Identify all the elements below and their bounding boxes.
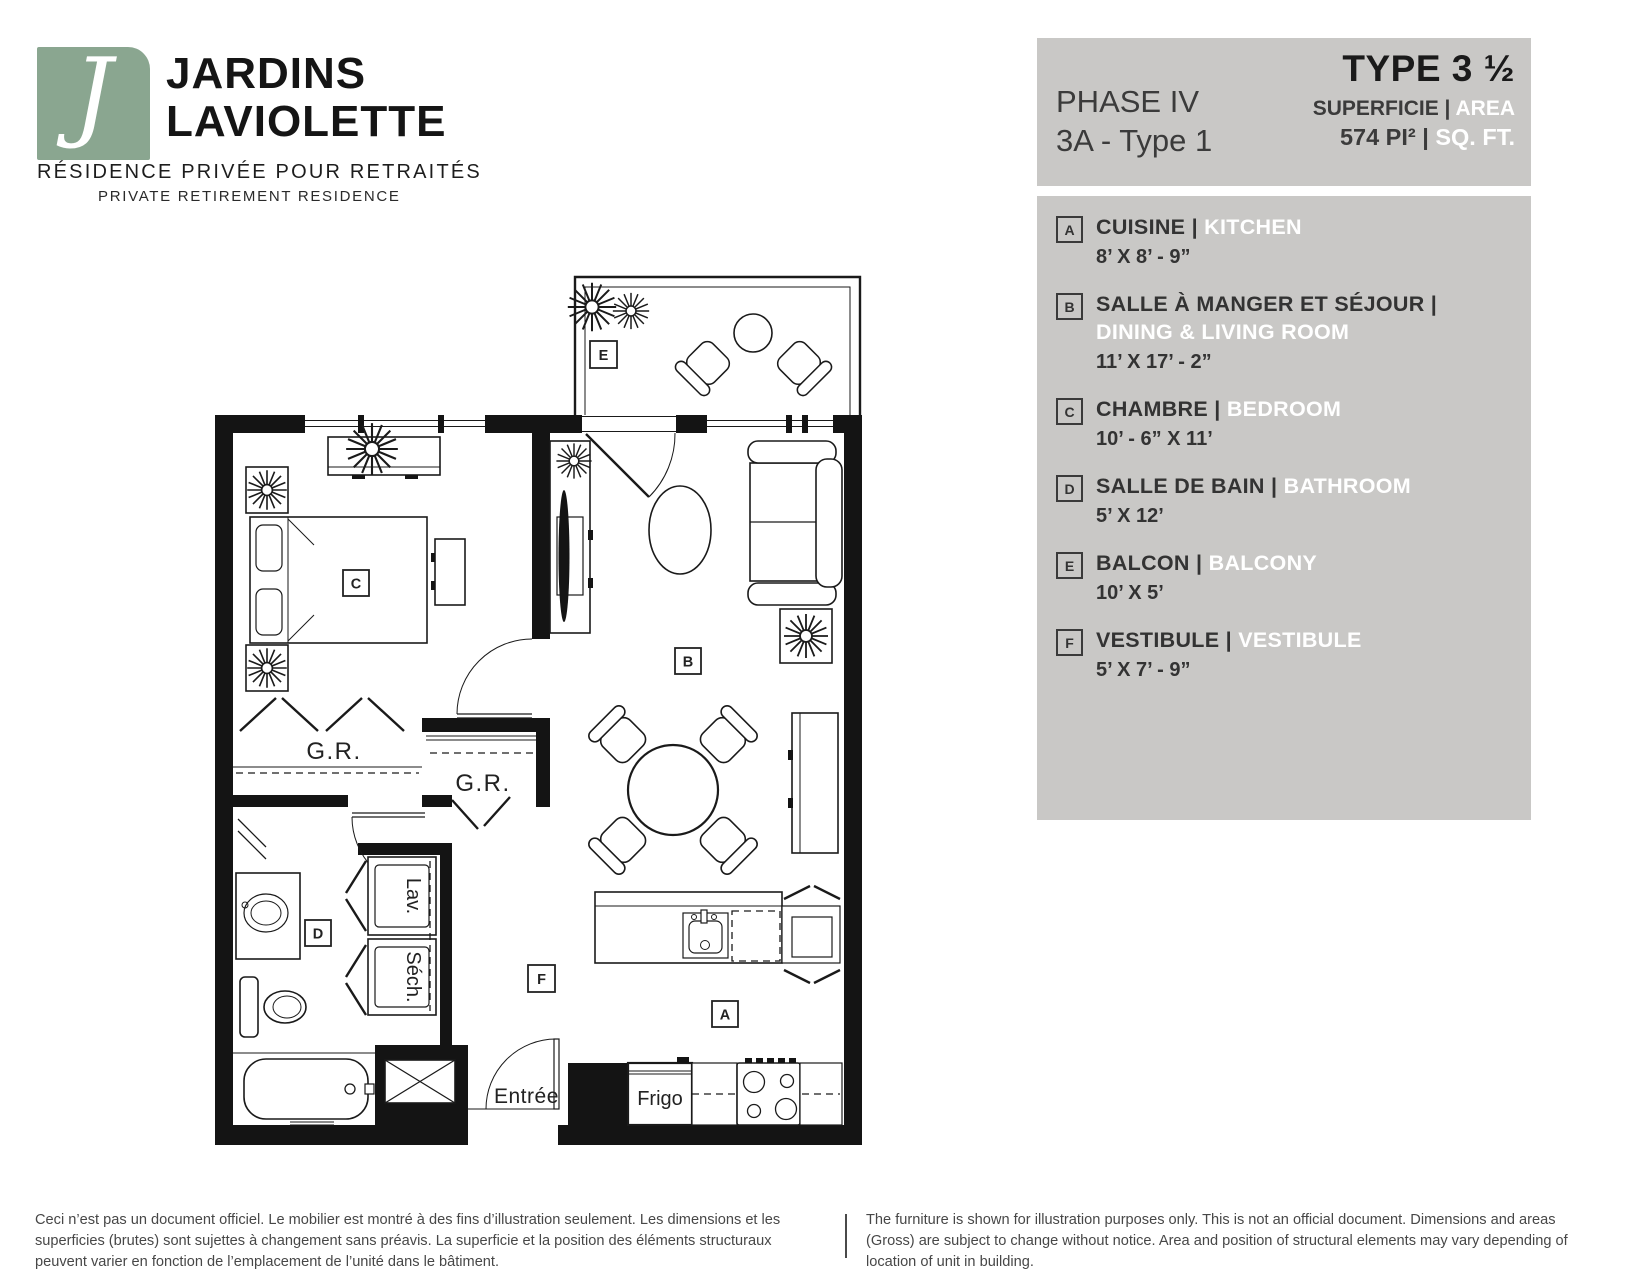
room-label-a: A bbox=[720, 1008, 731, 1024]
stove-icon bbox=[737, 1058, 800, 1125]
sofa-icon bbox=[748, 441, 842, 605]
kitchen-island bbox=[595, 886, 840, 983]
legend-name-en: BALCONY bbox=[1202, 551, 1317, 575]
type-label: TYPE 3 ½ bbox=[1313, 48, 1515, 90]
legend-dimensions: 10’ - 6” X 11’ bbox=[1096, 425, 1341, 453]
kitchen-sink-icon bbox=[683, 910, 728, 958]
closet-label: G.R. bbox=[306, 738, 361, 765]
bedroom-door bbox=[457, 639, 532, 718]
washer-label: Lav. bbox=[402, 878, 424, 914]
logo-monogram-icon: J bbox=[73, 37, 112, 151]
room-label-e: E bbox=[599, 348, 609, 364]
bathtub-icon bbox=[244, 1059, 374, 1125]
tv-icon bbox=[559, 490, 570, 622]
laundry-closet: Lav. Séch. bbox=[346, 857, 436, 1015]
stool-back-icon bbox=[784, 886, 840, 899]
balcony-door bbox=[582, 415, 676, 497]
legend-letter-box: D bbox=[1056, 475, 1083, 502]
closet-1: G.R. bbox=[233, 698, 422, 773]
legend-name-en: KITCHEN bbox=[1198, 215, 1302, 239]
coffee-table-icon bbox=[649, 486, 711, 574]
legend-name-fr: SALLE DE BAIN | bbox=[1096, 474, 1277, 498]
living-room bbox=[550, 441, 842, 663]
fridge-label: Frigo bbox=[637, 1088, 683, 1110]
area-label-en: AREA bbox=[1455, 97, 1515, 120]
area-label-fr: SUPERFICIE | bbox=[1313, 97, 1451, 120]
legend-item-c: CCHAMBRE | BEDROOM10’ - 6” X 11’ bbox=[1056, 395, 1521, 453]
shaft bbox=[385, 1060, 455, 1103]
room-label-b: B bbox=[683, 655, 693, 671]
stool-back-icon bbox=[784, 970, 840, 983]
logo-tagline-fr: RÉSIDENCE PRIVÉE POUR RETRAITÉS bbox=[37, 161, 482, 184]
room-label-d: D bbox=[313, 927, 323, 943]
legend-name-fr: BALCON | bbox=[1096, 551, 1202, 575]
unit-header-panel: PHASE IV 3A - Type 1 TYPE 3 ½ SUPERFICIE… bbox=[1037, 38, 1531, 186]
patio-chair-icon bbox=[771, 335, 833, 397]
pillow-icon bbox=[256, 525, 282, 571]
toilet-icon bbox=[240, 977, 306, 1037]
legend-dimensions: 5’ X 12’ bbox=[1096, 502, 1411, 530]
legend-item-d: DSALLE DE BAIN | BATHROOM5’ X 12’ bbox=[1056, 472, 1521, 530]
legend-letter-box: A bbox=[1056, 216, 1083, 243]
dresser-icon bbox=[328, 437, 440, 475]
area-value: 574 PI² | SQ. FT. bbox=[1313, 124, 1515, 151]
phase-label: PHASE IV bbox=[1056, 82, 1212, 121]
plant-icon bbox=[556, 443, 591, 478]
legend-name-en: DINING & LIVING ROOM bbox=[1096, 320, 1349, 344]
buffet-cabinet-icon bbox=[792, 713, 838, 853]
legend-dimensions: 11’ X 17’ - 2” bbox=[1096, 348, 1437, 376]
logo-square: J bbox=[37, 47, 150, 160]
area-value-fr: 574 PI² | bbox=[1340, 124, 1429, 150]
legend-name-fr: SALLE À MANGER ET SÉJOUR | bbox=[1096, 292, 1437, 316]
logo-name: JARDINS LAVIOLETTE bbox=[166, 50, 447, 146]
legend-name-fr: CUISINE | bbox=[1096, 215, 1198, 239]
plant-icon bbox=[346, 423, 398, 475]
legend-letter-box: C bbox=[1056, 398, 1083, 425]
phase-unit-block: PHASE IV 3A - Type 1 bbox=[1056, 82, 1212, 160]
bifold-door-icon bbox=[452, 797, 510, 829]
closet-label-2: G.R. bbox=[455, 770, 510, 797]
logo-tagline-en: PRIVATE RETIREMENT RESIDENCE bbox=[98, 188, 401, 205]
area-value-en: SQ. FT. bbox=[1435, 124, 1515, 150]
plant-icon bbox=[247, 470, 287, 510]
stool-icon bbox=[792, 917, 832, 957]
bedroom-window bbox=[300, 415, 490, 433]
living-room-window bbox=[702, 415, 838, 433]
patio-chair-icon bbox=[673, 335, 735, 397]
legend-name-fr: VESTIBULE | bbox=[1096, 628, 1232, 652]
legend-dimensions: 5’ X 7’ - 9” bbox=[1096, 656, 1362, 684]
legend-name-en: VESTIBULE bbox=[1232, 628, 1362, 652]
disclaimer-fr: Ceci n’est pas un document officiel. Le … bbox=[35, 1210, 813, 1273]
floor-plan: G.R. G.R. bbox=[200, 245, 870, 1155]
dining-area bbox=[586, 703, 838, 876]
legend-name-fr: CHAMBRE | bbox=[1096, 397, 1221, 421]
bedroom bbox=[246, 423, 465, 691]
plant-icon bbox=[613, 293, 649, 329]
entrance-label: Entrée bbox=[494, 1085, 559, 1108]
patio-table-icon bbox=[734, 314, 772, 352]
legend-letter-box: B bbox=[1056, 293, 1083, 320]
legend-dimensions: 8’ X 8’ - 9” bbox=[1096, 243, 1302, 271]
area-label: SUPERFICIE | AREA bbox=[1313, 97, 1515, 121]
bathroom bbox=[233, 819, 375, 1125]
legend-dimensions: 10’ X 5’ bbox=[1096, 579, 1317, 607]
fridge-icon: Frigo bbox=[628, 1057, 692, 1125]
pillow-icon bbox=[256, 589, 282, 635]
unit-label: 3A - Type 1 bbox=[1056, 121, 1212, 160]
corner-shelf-icon bbox=[238, 819, 266, 859]
room-legend-panel: ACUISINE | KITCHEN8’ X 8’ - 9”BSALLE À M… bbox=[1037, 196, 1531, 820]
legend-item-e: EBALCON | BALCONY10’ X 5’ bbox=[1056, 549, 1521, 607]
disclaimer-en: The furniture is shown for illustration … bbox=[866, 1210, 1590, 1273]
plant-icon bbox=[568, 283, 616, 331]
closet-2: G.R. bbox=[426, 736, 536, 829]
room-label-f: F bbox=[537, 972, 546, 988]
bifold-door-icon bbox=[240, 698, 404, 731]
legend-letter-box: F bbox=[1056, 629, 1083, 656]
plant-icon bbox=[784, 614, 828, 658]
wardrobe-icon bbox=[435, 539, 465, 605]
legend-list: ACUISINE | KITCHEN8’ X 8’ - 9”BSALLE À M… bbox=[1056, 213, 1521, 684]
legend-letter-box: E bbox=[1056, 552, 1083, 579]
kitchen-row: Frigo bbox=[628, 1057, 842, 1125]
dining-table-icon bbox=[628, 745, 718, 835]
legend-name-en: BATHROOM bbox=[1277, 474, 1411, 498]
logo-name-line2: LAVIOLETTE bbox=[166, 98, 447, 146]
legend-item-a: ACUISINE | KITCHEN8’ X 8’ - 9” bbox=[1056, 213, 1521, 271]
plant-icon bbox=[247, 648, 287, 688]
footer-divider bbox=[845, 1214, 847, 1258]
legend-item-f: FVESTIBULE | VESTIBULE5’ X 7’ - 9” bbox=[1056, 626, 1521, 684]
type-area-block: TYPE 3 ½ SUPERFICIE | AREA 574 PI² | SQ.… bbox=[1313, 48, 1515, 151]
legend-name-en: BEDROOM bbox=[1221, 397, 1342, 421]
logo-name-line1: JARDINS bbox=[166, 50, 447, 98]
dryer-label: Séch. bbox=[402, 951, 424, 1002]
legend-item-b: BSALLE À MANGER ET SÉJOUR |DINING & LIVI… bbox=[1056, 290, 1521, 376]
room-label-c: C bbox=[351, 577, 362, 593]
bifold-door-icon bbox=[346, 861, 366, 1015]
